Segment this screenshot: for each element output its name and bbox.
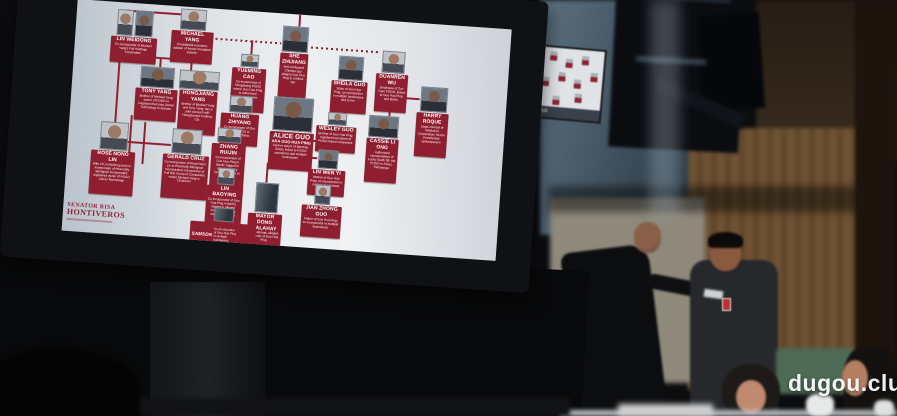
monitor-stand <box>150 282 265 416</box>
portrait-photo <box>381 50 405 74</box>
dotted-connector-line <box>215 38 281 45</box>
portrait-photo <box>116 9 134 36</box>
portrait-photo <box>327 112 347 126</box>
portrait-photo <box>314 184 331 205</box>
node-sheila-guo: SHEILA GUO Sister of Guo Hua Ping; co-in… <box>329 55 369 115</box>
node-gerald-cruz: GERALD CRUZ Co-incorporator of Rose Nono… <box>160 128 211 201</box>
portrait-photo <box>134 10 154 37</box>
node-tony-yang: TONY YANG Brother of Michael Yang; owner… <box>133 65 179 122</box>
dark-table-front <box>130 398 570 416</box>
portrait-photo <box>180 8 207 31</box>
water-bottle <box>874 400 894 416</box>
portrait-photo <box>214 207 235 222</box>
portrait-photo <box>140 66 175 89</box>
presentation-monitor: LIN WEIDONG Co-incorporator of Michael Y… <box>0 0 549 293</box>
man-in-suit-head <box>634 222 661 253</box>
dotted-connector-line <box>311 46 381 53</box>
mini-chart-node <box>552 96 560 106</box>
portrait-photo <box>229 95 253 114</box>
mini-chart-node <box>590 73 598 83</box>
node-jian-zhong-guo: JIAN ZHONG GUO Father of Guo Hua Ping; c… <box>300 183 344 239</box>
portrait-photo <box>317 149 338 169</box>
node-wesley-guo: WESLEY GUO Brother of Guo Hua Ping; regi… <box>315 111 358 154</box>
portrait-photo <box>240 54 259 68</box>
org-chart-slide: LIN WEIDONG Co-incorporator of Michael Y… <box>62 0 512 261</box>
node-rose-nono-lin: ROSE NONO LIN Wife of Lin Weidong and co… <box>88 120 137 196</box>
mini-chart-node <box>558 72 566 82</box>
hontiveros-logo: SENATOR RISA HONTIVEROS <box>66 202 125 224</box>
node-lin-weidong: LIN WEIDONG Co-incorporator of Michael Y… <box>109 9 159 66</box>
connector-line <box>298 15 301 27</box>
connector-line <box>159 58 162 67</box>
seated-woman-face <box>736 380 766 414</box>
portrait-photo <box>217 167 235 185</box>
portrait-photo <box>171 128 203 155</box>
portrait-photo <box>99 121 129 151</box>
portrait-photo <box>337 55 364 81</box>
table-edge <box>560 410 897 416</box>
mini-chart-node <box>565 59 573 69</box>
node-she-zhijiang: SHE ZHIJIANG Self-confessed Chinese spy;… <box>277 25 310 98</box>
table-papers <box>618 404 713 416</box>
node-cassie-li-ong: CASSIE LI ONG Authorized representative … <box>364 115 401 184</box>
node-michael-yang: MICHAEL YANG Presidential economic advis… <box>170 8 216 65</box>
portrait-photo <box>282 26 310 54</box>
connector-line <box>250 40 253 54</box>
mini-chart-node <box>582 56 590 66</box>
man-in-polo-hair <box>708 232 743 248</box>
portrait-photo <box>368 115 399 139</box>
connector-line <box>114 55 121 122</box>
id-badge <box>722 298 731 311</box>
watermark: dugou.club <box>788 370 897 397</box>
wall-shadow <box>548 186 897 212</box>
node-samson: SAMSON Co-incorporator of Guo Hua Ping i… <box>189 206 258 251</box>
light-reflection <box>650 0 680 215</box>
mini-chart-node <box>550 51 558 61</box>
portrait-photo <box>419 86 448 113</box>
mini-chart-node <box>574 94 582 104</box>
senate-hearing-photo: Session Hall <box>0 0 897 416</box>
portrait-photo <box>254 182 279 214</box>
water-bottle <box>806 394 834 416</box>
node-harry-roque: HARRY ROQUE Legal counsel of Whirlwind C… <box>414 86 451 158</box>
node-duanren-wu: DUANREN WU Employee of Zun Yuan POGO; li… <box>374 50 410 113</box>
mini-chart-node <box>574 79 582 89</box>
camera-rig-body <box>697 12 766 112</box>
portrait-photo <box>179 69 220 91</box>
portrait-photo <box>272 96 314 133</box>
portrait-photo <box>217 127 242 144</box>
